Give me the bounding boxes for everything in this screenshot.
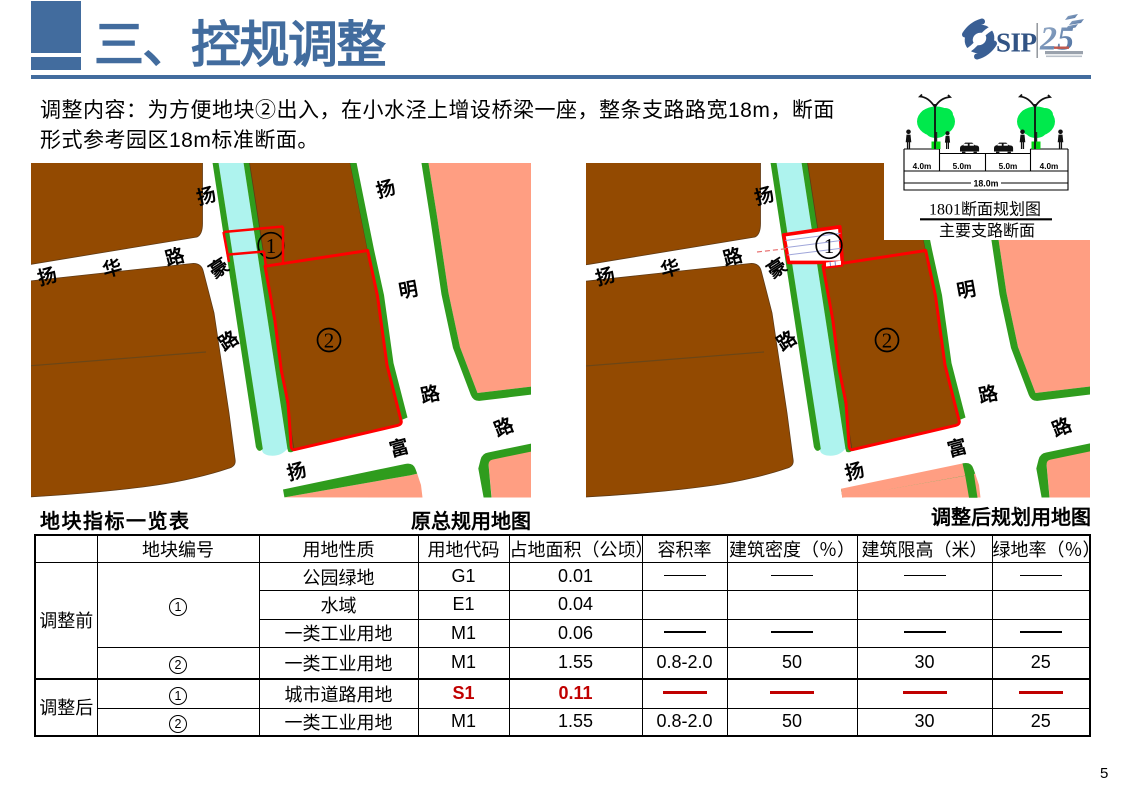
svg-text:5.0m: 5.0m	[999, 162, 1018, 171]
svg-text:5.0m: 5.0m	[953, 162, 972, 171]
svg-text:4.0m: 4.0m	[913, 162, 932, 171]
svg-text:SIP: SIP	[996, 28, 1037, 58]
svg-text:1801断面规划图: 1801断面规划图	[929, 201, 1041, 219]
svg-text:1: 1	[824, 234, 835, 258]
svg-text:18.0m: 18.0m	[974, 179, 999, 189]
svg-text:主要支路断面: 主要支路断面	[939, 222, 1035, 240]
svg-text:4.0m: 4.0m	[1040, 162, 1059, 171]
